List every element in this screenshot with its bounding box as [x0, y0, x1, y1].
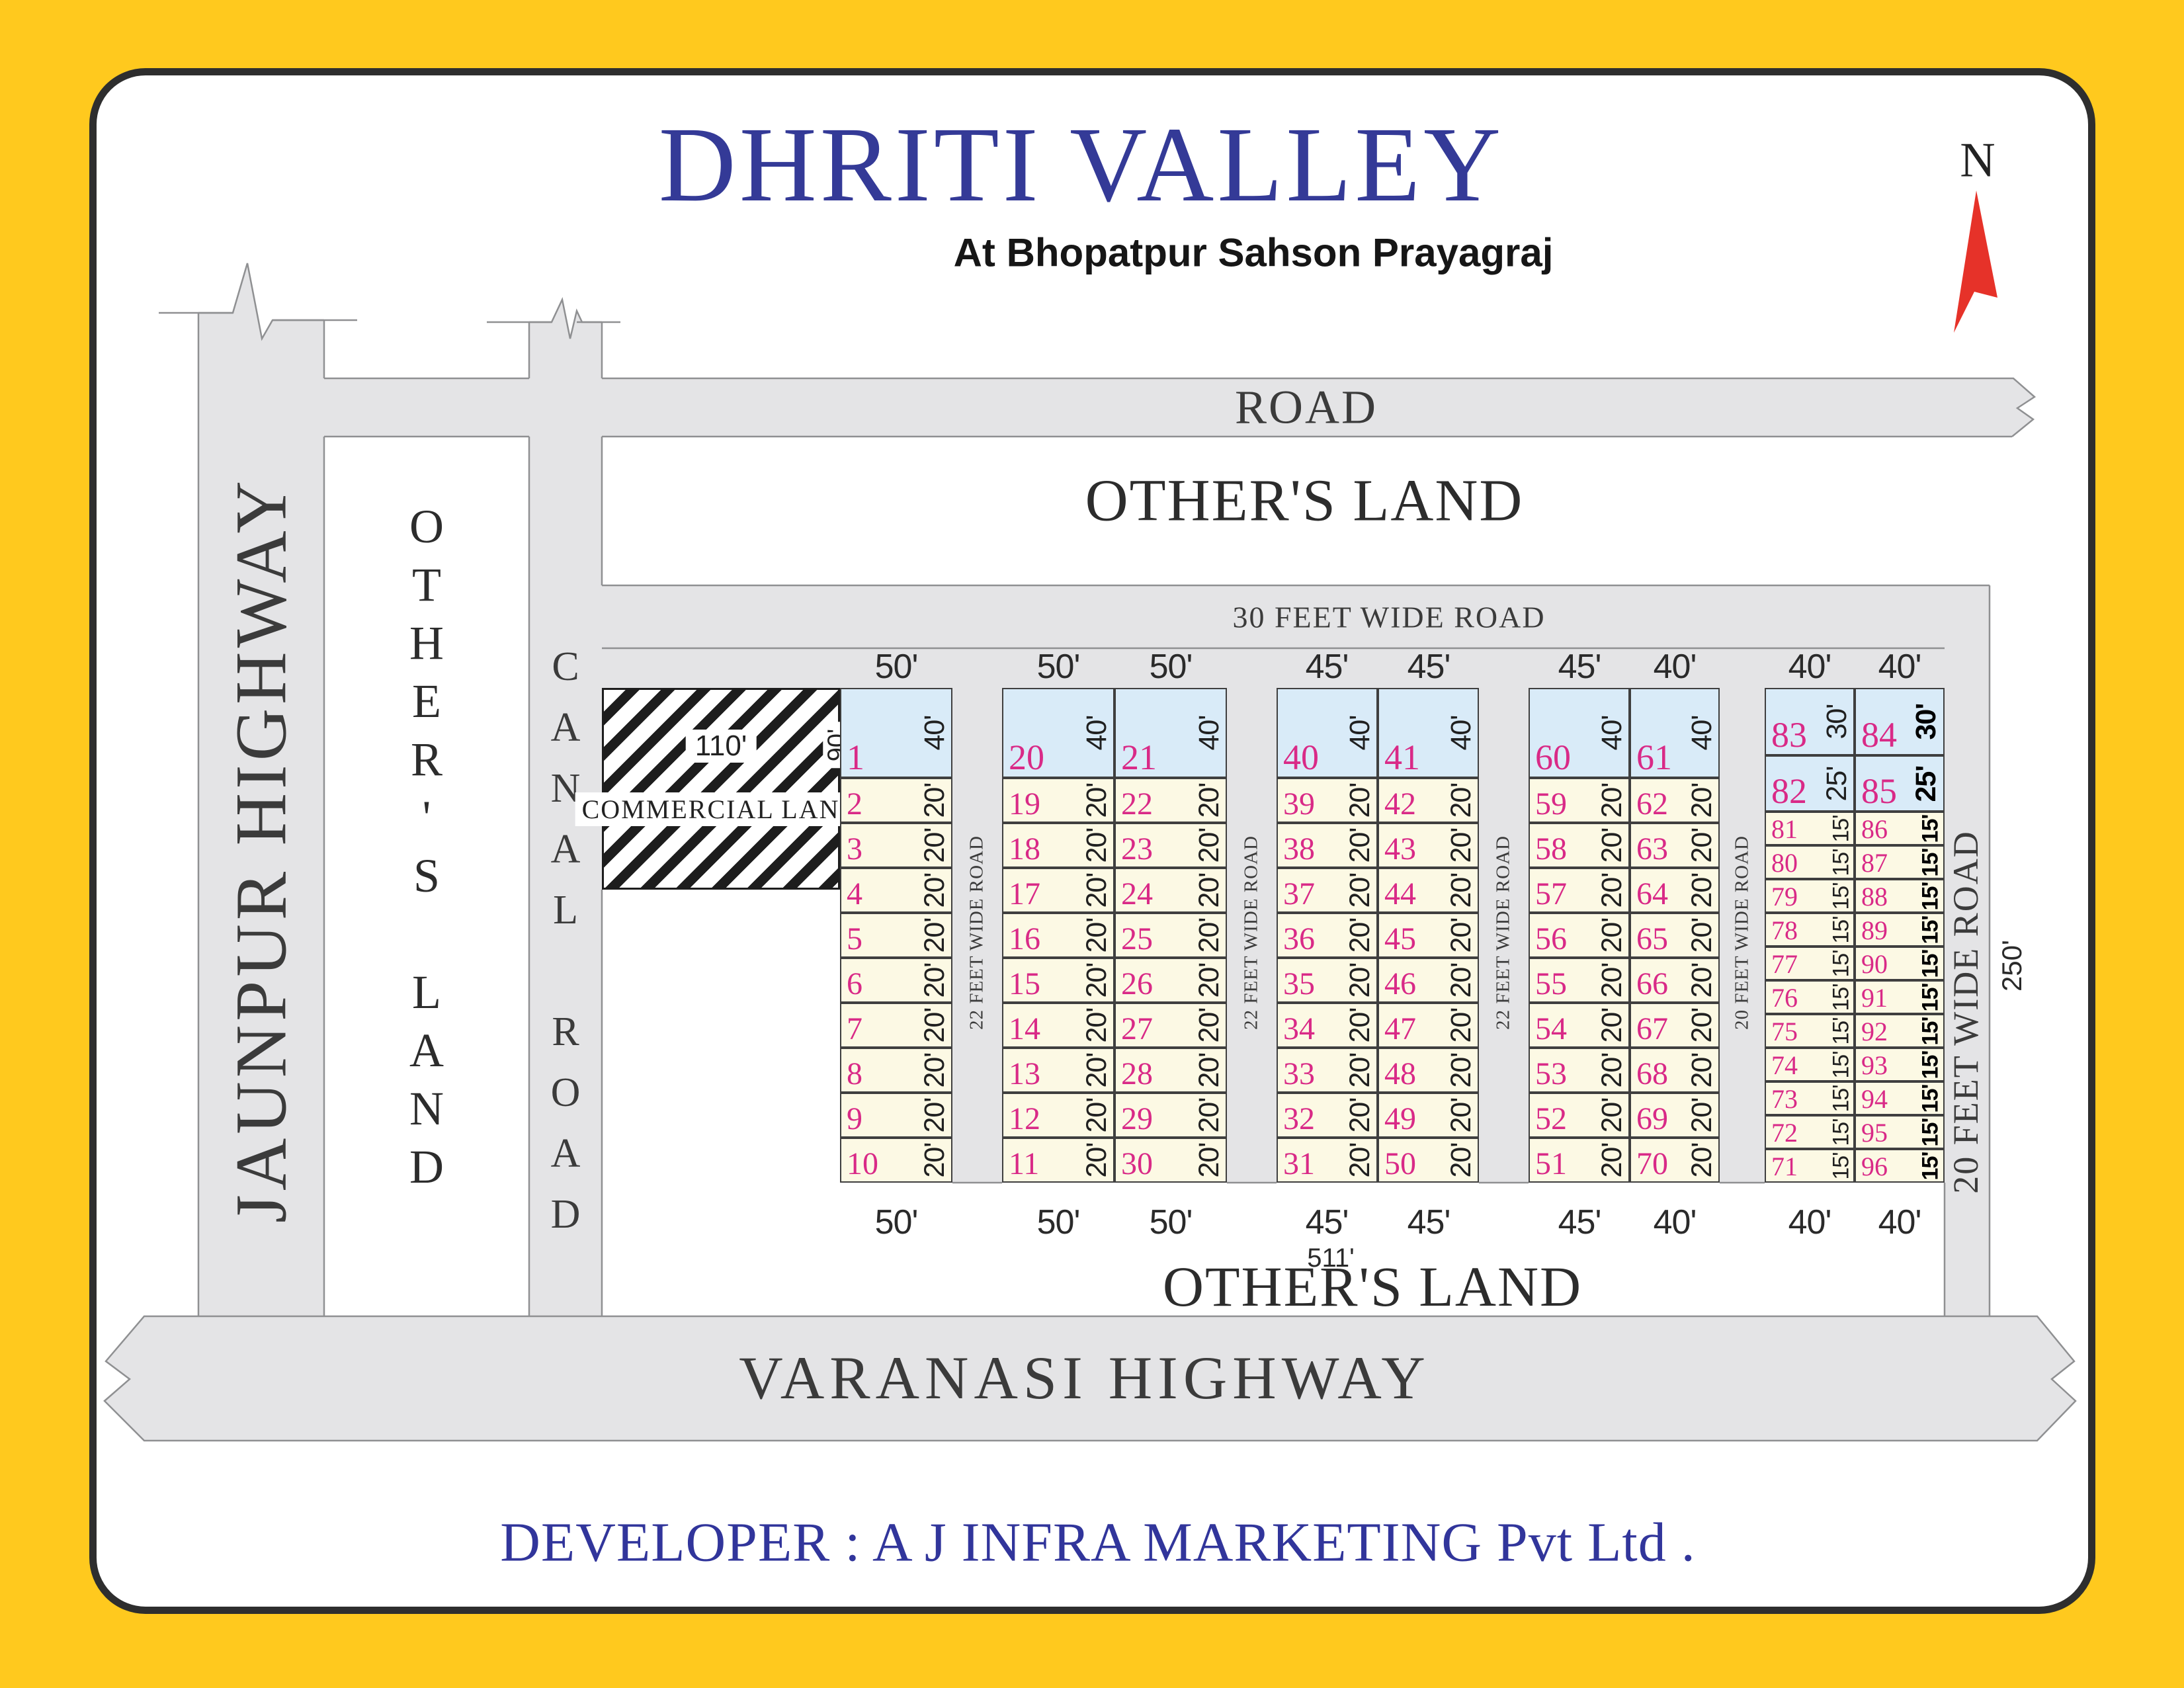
plot-18: 1820' [1002, 823, 1114, 868]
jaunpur-highway-label: JAUNPUR HIGHWAY [220, 477, 304, 1223]
plot-70: 7020' [1630, 1138, 1720, 1183]
varanasi-highway-label: VARANASI HIGHWAY [739, 1343, 1431, 1413]
plot-75: 7515' [1765, 1014, 1855, 1048]
plot-dimension: 20' [1346, 917, 1374, 952]
plot-number: 46 [1384, 968, 1416, 1000]
plot-dimension: 20' [1083, 872, 1111, 907]
plot-dimension: 20' [1346, 962, 1374, 997]
plot-number: 60 [1535, 739, 1571, 775]
plot-71: 7115' [1765, 1149, 1855, 1183]
col-width-bottom-9: 40' [1878, 1203, 1921, 1242]
plot-number: 14 [1009, 1013, 1040, 1045]
plot-63: 6320' [1630, 823, 1720, 868]
plot-dimension: 20' [1195, 917, 1224, 952]
plot-94: 9415' [1855, 1081, 1945, 1115]
plot-number: 72 [1771, 1120, 1798, 1146]
plot-number: 50 [1384, 1148, 1416, 1180]
plot-31: 3120' [1277, 1138, 1378, 1183]
plot-72: 7215' [1765, 1115, 1855, 1149]
plot-number: 41 [1384, 739, 1420, 775]
plot-29: 2920' [1114, 1093, 1227, 1138]
plot-27: 2720' [1114, 1003, 1227, 1048]
plot-dimension: 40' [1447, 715, 1476, 750]
plot-dimension: 20' [1598, 917, 1626, 952]
north-label: N [1960, 133, 1995, 189]
plot-number: 57 [1535, 878, 1567, 910]
plot-number: 16 [1009, 923, 1040, 955]
plot-53: 5320' [1529, 1048, 1630, 1093]
plot-59: 5920' [1529, 778, 1630, 823]
plot-dimension: 20' [1083, 917, 1111, 952]
plot-number: 52 [1535, 1103, 1567, 1135]
plot-number: 62 [1636, 788, 1668, 820]
plot-dimension: 20' [921, 872, 949, 907]
plot-number: 34 [1283, 1013, 1315, 1045]
plot-73: 7315' [1765, 1081, 1855, 1115]
plot-14: 1420' [1002, 1003, 1114, 1048]
plot-dimension: 40' [1346, 715, 1374, 750]
plot-number: 39 [1283, 788, 1315, 820]
others-land-left-label: O T H E R ' S L A N D [409, 497, 444, 1196]
plot-number: 86 [1861, 816, 1888, 843]
plot-number: 47 [1384, 1013, 1416, 1045]
col-width-top-5: 45' [1407, 647, 1450, 687]
plot-38: 3820' [1277, 823, 1378, 868]
plot-number: 84 [1861, 717, 1897, 753]
plot-51: 5120' [1529, 1138, 1630, 1183]
plot-number: 69 [1636, 1103, 1668, 1135]
plot-number: 75 [1771, 1019, 1798, 1045]
plot-5: 520' [840, 913, 952, 958]
plot-number: 82 [1771, 773, 1807, 809]
plot-dimension: 15' [1829, 815, 1852, 842]
plot-dimension: 15' [1829, 916, 1852, 943]
plot-number: 85 [1861, 773, 1897, 809]
plot-16: 1620' [1002, 913, 1114, 958]
plot-number: 3 [847, 833, 862, 865]
plot-dimension: 20' [1447, 1007, 1476, 1042]
plot-dimension: 20' [1688, 1142, 1716, 1177]
plot-dimension: 20' [1598, 827, 1626, 863]
plot-dimension: 20' [1346, 827, 1374, 863]
plot-dimension: 15' [1919, 1017, 1942, 1045]
plot-37: 3720' [1277, 868, 1378, 913]
col-width-top-4: 45' [1306, 647, 1349, 687]
plot-89: 8915' [1855, 913, 1945, 947]
plot-15: 1520' [1002, 958, 1114, 1003]
plot-number: 95 [1861, 1120, 1888, 1146]
commercial-land-area: 110' COMMERCIAL LAND 90' [602, 688, 840, 890]
plot-dimension: 20' [1083, 962, 1111, 997]
plot-number: 11 [1009, 1148, 1039, 1180]
col-width-top-3: 50' [1150, 647, 1193, 687]
plot-25: 2520' [1114, 913, 1227, 958]
plot-dimension: 20' [1447, 1142, 1476, 1177]
plot-number: 71 [1771, 1154, 1798, 1180]
plot-dimension: 15' [1919, 1118, 1942, 1146]
plot-dimension: 20' [1688, 1052, 1716, 1087]
plot-dimension: 20' [1083, 1052, 1111, 1087]
plot-number: 87 [1861, 850, 1888, 876]
plot-41: 4140' [1378, 688, 1479, 778]
plot-84: 8430' [1855, 688, 1945, 755]
plot-dimension: 15' [1829, 950, 1852, 977]
plot-number: 83 [1771, 717, 1807, 753]
plot-number: 88 [1861, 884, 1888, 910]
plot-78: 7815' [1765, 913, 1855, 947]
plot-dimension: 20' [1447, 872, 1476, 907]
plot-77: 7715' [1765, 947, 1855, 980]
plot-88: 8815' [1855, 879, 1945, 913]
plot-dimension: 20' [1598, 1142, 1626, 1177]
plot-dimension: 30' [1823, 704, 1851, 739]
plot-11: 1120' [1002, 1138, 1114, 1183]
plot-9: 920' [840, 1093, 952, 1138]
plot-number: 6 [847, 968, 862, 1000]
plot-dimension: 20' [1688, 872, 1716, 907]
plot-dimension: 20' [1598, 1052, 1626, 1087]
plot-number: 32 [1283, 1103, 1315, 1135]
plot-28: 2820' [1114, 1048, 1227, 1093]
plot-number: 31 [1283, 1148, 1315, 1180]
plot-number: 19 [1009, 788, 1040, 820]
plot-dimension: 15' [1919, 915, 1942, 944]
plot-number: 15 [1009, 968, 1040, 1000]
top-road-label: ROAD [1235, 380, 1378, 435]
plot-34: 3420' [1277, 1003, 1378, 1048]
plot-83: 8330' [1765, 688, 1855, 755]
plot-number: 53 [1535, 1058, 1567, 1090]
plot-number: 70 [1636, 1148, 1668, 1180]
col-width-bottom-1: 50' [875, 1203, 918, 1242]
col-width-top-8: 40' [1788, 647, 1831, 687]
plot-58: 5820' [1529, 823, 1630, 868]
plot-number: 51 [1535, 1148, 1567, 1180]
commercial-land-label: COMMERCIAL LAND [575, 792, 867, 826]
plot-dimension: 20' [1598, 782, 1626, 818]
plot-dimension: 15' [1919, 949, 1942, 978]
plot-dimension: 20' [1195, 827, 1224, 863]
col-width-top-6: 45' [1558, 647, 1601, 687]
col-width-bottom-5: 45' [1407, 1203, 1450, 1242]
plot-17: 1720' [1002, 868, 1114, 913]
plot-dimension: 20' [1447, 1052, 1476, 1087]
project-subtitle: At Bhopatpur Sahson Prayagraj [954, 230, 1554, 276]
strip-road-label-1: 22 FEET WIDE ROAD [966, 835, 988, 1030]
plot-dimension: 20' [1195, 1052, 1224, 1087]
plot-dimension: 20' [1447, 827, 1476, 863]
plot-dimension: 20' [1447, 782, 1476, 818]
plot-74: 7415' [1765, 1048, 1855, 1081]
plot-2: 220' [840, 778, 952, 823]
plot-62: 6220' [1630, 778, 1720, 823]
plot-number: 65 [1636, 923, 1668, 955]
plot-number: 74 [1771, 1052, 1798, 1079]
strip-road-label-2: 22 FEET WIDE ROAD [1241, 835, 1263, 1030]
plot-82: 8225' [1765, 755, 1855, 812]
col-width-bottom-4: 45' [1306, 1203, 1349, 1242]
plot-number: 96 [1861, 1154, 1888, 1180]
plot-56: 5620' [1529, 913, 1630, 958]
plot-67: 6720' [1630, 1003, 1720, 1048]
plot-50: 5020' [1378, 1138, 1479, 1183]
plot-32: 3220' [1277, 1093, 1378, 1138]
plot-number: 24 [1121, 878, 1153, 910]
plot-12: 1220' [1002, 1093, 1114, 1138]
plot-dimension: 20' [1688, 1097, 1716, 1132]
plot-dimension: 20' [1195, 1142, 1224, 1177]
plot-30: 3020' [1114, 1138, 1227, 1183]
plot-40: 4040' [1277, 688, 1378, 778]
plot-7: 720' [840, 1003, 952, 1048]
plot-dimension: 20' [1346, 1007, 1374, 1042]
plot-number: 64 [1636, 878, 1668, 910]
plot-20: 2040' [1002, 688, 1114, 778]
plot-number: 4 [847, 878, 862, 910]
plot-81: 8115' [1765, 812, 1855, 845]
plot-number: 55 [1535, 968, 1567, 1000]
plot-number: 10 [847, 1148, 878, 1180]
plot-35: 3520' [1277, 958, 1378, 1003]
plot-number: 94 [1861, 1086, 1888, 1113]
plot-dimension: 25' [1823, 766, 1851, 801]
plot-number: 54 [1535, 1013, 1567, 1045]
plot-dimension: 15' [1919, 1152, 1942, 1180]
plot-dimension: 20' [921, 917, 949, 952]
plot-90: 9015' [1855, 947, 1945, 980]
plot-number: 5 [847, 923, 862, 955]
plot-47: 4720' [1378, 1003, 1479, 1048]
plot-24: 2420' [1114, 868, 1227, 913]
plot-1: 140' [840, 688, 952, 778]
plot-dimension: 20' [1447, 1097, 1476, 1132]
plot-number: 40 [1283, 739, 1319, 775]
plot-number: 56 [1535, 923, 1567, 955]
plot-96: 9615' [1855, 1149, 1945, 1183]
plot-number: 36 [1283, 923, 1315, 955]
plot-number: 20 [1009, 739, 1044, 775]
plot-dimension: 20' [1083, 827, 1111, 863]
plot-43: 4320' [1378, 823, 1479, 868]
plot-number: 25 [1121, 923, 1153, 955]
plot-48: 4820' [1378, 1048, 1479, 1093]
plot-number: 45 [1384, 923, 1416, 955]
plot-number: 27 [1121, 1013, 1153, 1045]
north-arrow-icon [1938, 185, 2011, 344]
plot-dimension: 40' [921, 715, 949, 750]
plot-87: 8715' [1855, 845, 1945, 879]
plot-dimension: 20' [1688, 917, 1716, 952]
plot-57: 5720' [1529, 868, 1630, 913]
plot-dimension: 20' [921, 1007, 949, 1042]
plot-number: 92 [1861, 1019, 1888, 1045]
plot-number: 89 [1861, 917, 1888, 944]
plot-dimension: 20' [1447, 962, 1476, 997]
plot-number: 93 [1861, 1052, 1888, 1079]
plot-68: 6820' [1630, 1048, 1720, 1093]
plot-dimension: 20' [1598, 1097, 1626, 1132]
right-20ft-road-label: 20 FEET WIDE ROAD [1945, 830, 1986, 1193]
plot-dimension: 15' [1829, 1085, 1852, 1112]
plot-10: 1020' [840, 1138, 952, 1183]
plot-6: 620' [840, 958, 952, 1003]
plot-95: 9515' [1855, 1115, 1945, 1149]
plot-number: 49 [1384, 1103, 1416, 1135]
plot-number: 7 [847, 1013, 862, 1045]
plot-dimension: 20' [1195, 1007, 1224, 1042]
plot-number: 81 [1771, 816, 1798, 843]
plot-66: 6620' [1630, 958, 1720, 1003]
plot-number: 17 [1009, 878, 1040, 910]
plot-54: 5420' [1529, 1003, 1630, 1048]
plot-number: 9 [847, 1103, 862, 1135]
plot-number: 35 [1283, 968, 1315, 1000]
plot-number: 44 [1384, 878, 1416, 910]
plot-dimension: 20' [921, 782, 949, 818]
plot-19: 1920' [1002, 778, 1114, 823]
plot-number: 8 [847, 1058, 862, 1090]
col-width-bottom-8: 40' [1788, 1203, 1831, 1242]
plot-number: 91 [1861, 985, 1888, 1011]
col-width-bottom-3: 50' [1150, 1203, 1193, 1242]
plot-dimension: 20' [1346, 1052, 1374, 1087]
plot-dimension: 20' [1346, 1097, 1374, 1132]
plot-number: 77 [1771, 951, 1798, 978]
plot-number: 42 [1384, 788, 1416, 820]
plot-26: 2620' [1114, 958, 1227, 1003]
plot-3: 320' [840, 823, 952, 868]
plot-4: 420' [840, 868, 952, 913]
plot-dimension: 20' [921, 1052, 949, 1087]
plot-39: 3920' [1277, 778, 1378, 823]
plot-number: 79 [1771, 884, 1798, 910]
plot-number: 67 [1636, 1013, 1668, 1045]
plot-dimension: 20' [1346, 1142, 1374, 1177]
plot-65: 6520' [1630, 913, 1720, 958]
plot-dimension: 15' [1829, 882, 1852, 909]
plot-45: 4520' [1378, 913, 1479, 958]
plot-dimension: 15' [1829, 1051, 1852, 1078]
plot-44: 4420' [1378, 868, 1479, 913]
col-width-bottom-6: 45' [1558, 1203, 1601, 1242]
strip-road-label-3: 22 FEET WIDE ROAD [1493, 835, 1515, 1030]
plot-dimension: 15' [1919, 882, 1942, 910]
strip-road-label-4: 20 FEET WIDE ROAD [1732, 835, 1753, 1030]
thirty-feet-road-label: 30 FEET WIDE ROAD [1232, 600, 1545, 635]
plot-dimension: 15' [1829, 849, 1852, 876]
plot-dimension: 20' [1083, 1007, 1111, 1042]
plot-dimension: 20' [1195, 962, 1224, 997]
developer-line: DEVELOPER : A J INFRA MARKETING Pvt Ltd … [500, 1511, 1695, 1575]
plot-76: 7615' [1765, 980, 1855, 1014]
plot-number: 38 [1283, 833, 1315, 865]
site-plan-canvas: DHRITI VALLEY At Bhopatpur Sahson Prayag… [0, 0, 2184, 1688]
plot-64: 6420' [1630, 868, 1720, 913]
plot-dimension: 20' [921, 962, 949, 997]
plot-13: 1320' [1002, 1048, 1114, 1093]
plot-number: 18 [1009, 833, 1040, 865]
plot-number: 43 [1384, 833, 1416, 865]
plot-dimension: 15' [1919, 1050, 1942, 1079]
plot-number: 63 [1636, 833, 1668, 865]
plot-number: 21 [1121, 739, 1157, 775]
plot-55: 5520' [1529, 958, 1630, 1003]
plot-dimension: 20' [1598, 872, 1626, 907]
plot-dimension: 20' [1083, 782, 1111, 818]
plot-dimension: 30' [1912, 703, 1941, 739]
plot-number: 29 [1121, 1103, 1153, 1135]
plot-dimension: 40' [1688, 715, 1716, 750]
plot-dimension: 20' [1083, 1142, 1111, 1177]
plot-dimension: 20' [921, 827, 949, 863]
plot-number: 59 [1535, 788, 1567, 820]
plot-dimension: 20' [921, 1097, 949, 1132]
plot-dimension: 20' [1688, 1007, 1716, 1042]
col-width-top-1: 50' [875, 647, 918, 687]
plot-61: 6140' [1630, 688, 1720, 778]
plot-number: 28 [1121, 1058, 1153, 1090]
plot-60: 6040' [1529, 688, 1630, 778]
plot-number: 73 [1771, 1086, 1798, 1113]
plot-dimension: 15' [1829, 1152, 1852, 1179]
plot-dimension: 25' [1912, 765, 1941, 802]
plot-number: 26 [1121, 968, 1153, 1000]
plot-number: 58 [1535, 833, 1567, 865]
plot-dimension: 20' [1195, 1097, 1224, 1132]
plot-dimension: 20' [1195, 782, 1224, 818]
canal-road-label: C A N A L R O A D [551, 636, 581, 1245]
plot-79: 7915' [1765, 879, 1855, 913]
total-height-measure: 250' [1996, 940, 2028, 992]
col-width-bottom-7: 40' [1654, 1203, 1697, 1242]
plot-92: 9215' [1855, 1014, 1945, 1048]
plot-number: 48 [1384, 1058, 1416, 1090]
plot-dimension: 15' [1829, 1017, 1852, 1044]
col-width-top-7: 40' [1654, 647, 1697, 687]
plot-49: 4920' [1378, 1093, 1479, 1138]
plot-number: 33 [1283, 1058, 1315, 1090]
plot-52: 5220' [1529, 1093, 1630, 1138]
plot-number: 68 [1636, 1058, 1668, 1090]
plot-21: 2140' [1114, 688, 1227, 778]
plot-dimension: 20' [1346, 782, 1374, 818]
plot-46: 4620' [1378, 958, 1479, 1003]
project-title: DHRITI VALLEY [659, 104, 1504, 227]
plot-dimension: 40' [1195, 715, 1224, 750]
plot-number: 2 [847, 788, 862, 820]
plot-number: 22 [1121, 788, 1153, 820]
plot-8: 820' [840, 1048, 952, 1093]
plot-dimension: 20' [1688, 962, 1716, 997]
col-width-bottom-2: 50' [1037, 1203, 1080, 1242]
plot-dimension: 15' [1919, 983, 1942, 1011]
plot-number: 78 [1771, 917, 1798, 944]
plot-dimension: 20' [1195, 872, 1224, 907]
plot-number: 90 [1861, 951, 1888, 978]
plot-dimension: 20' [921, 1142, 949, 1177]
plot-80: 8015' [1765, 845, 1855, 879]
plot-dimension: 15' [1829, 1118, 1852, 1146]
plot-86: 8615' [1855, 812, 1945, 845]
plot-number: 66 [1636, 968, 1668, 1000]
plot-dimension: 20' [1447, 917, 1476, 952]
plot-dimension: 20' [1346, 872, 1374, 907]
plot-22: 2220' [1114, 778, 1227, 823]
plot-number: 13 [1009, 1058, 1040, 1090]
plot-dimension: 20' [1598, 962, 1626, 997]
plot-dimension: 15' [1919, 814, 1942, 843]
col-width-top-9: 40' [1878, 647, 1921, 687]
